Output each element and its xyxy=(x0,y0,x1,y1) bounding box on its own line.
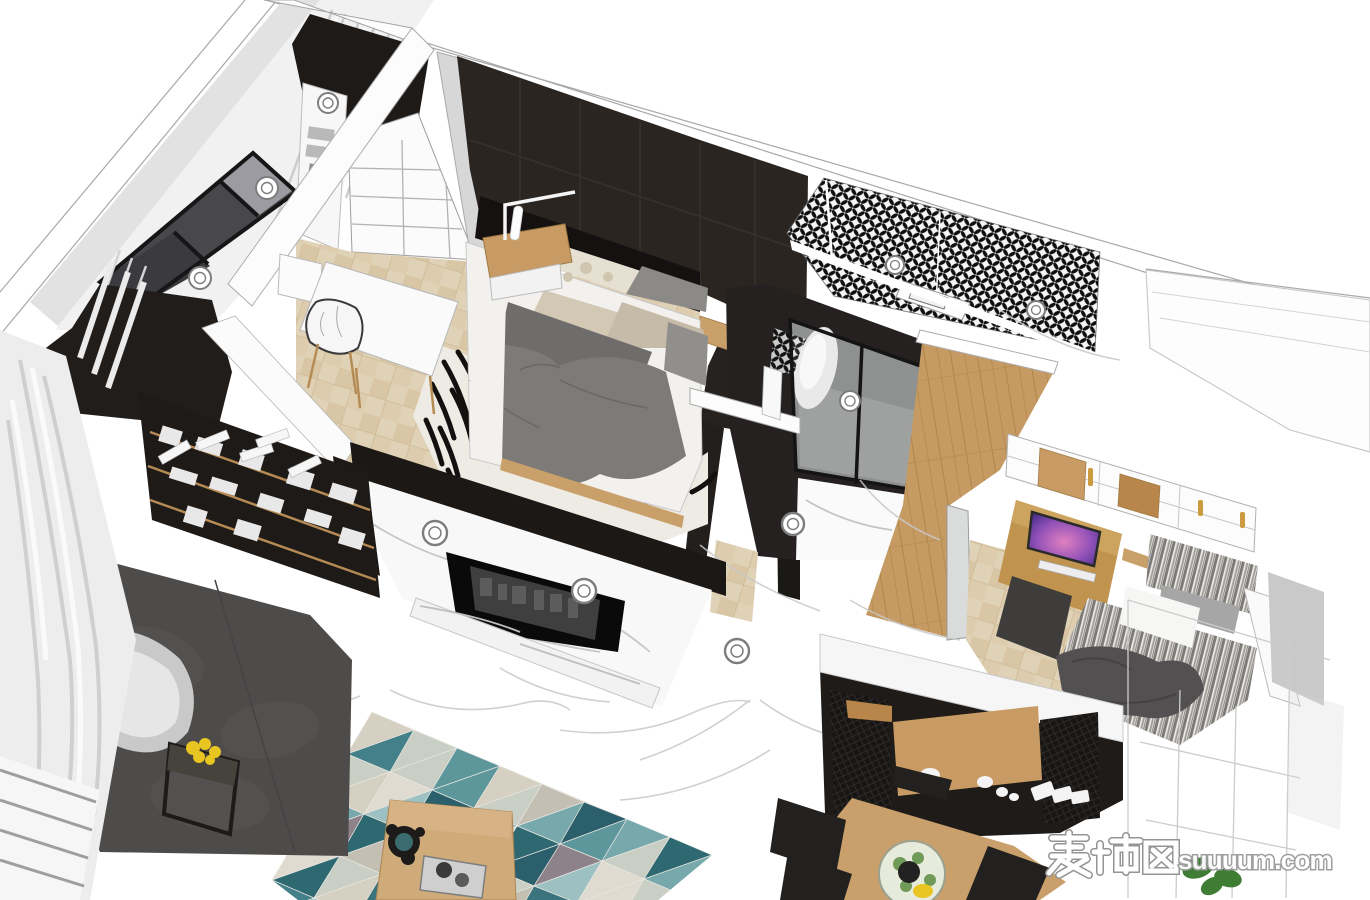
svg-text:suuuum.com: suuuum.com xyxy=(1178,845,1332,875)
